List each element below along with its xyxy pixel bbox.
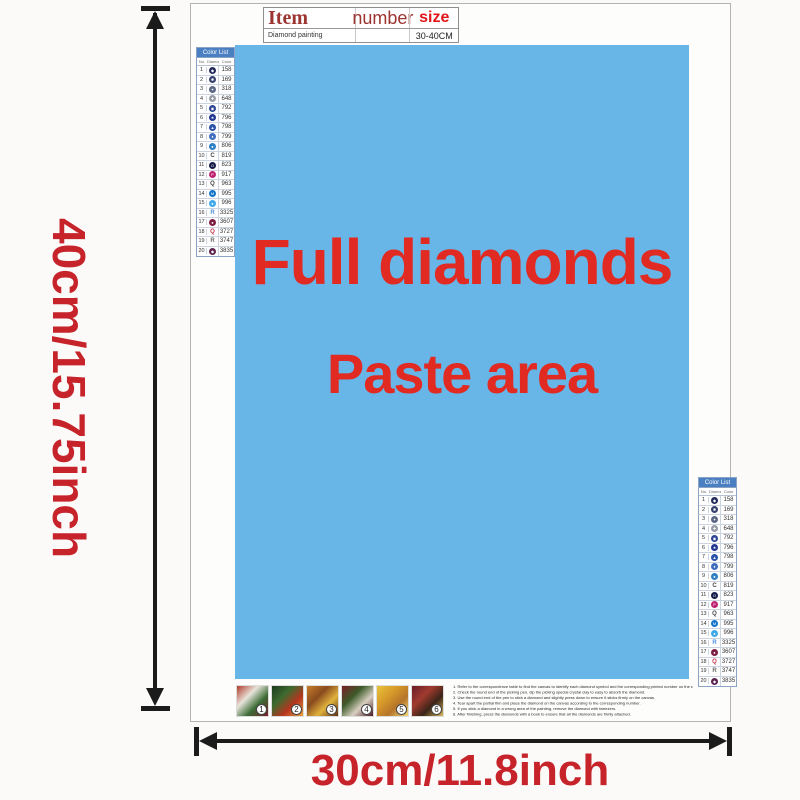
color-number: 8 xyxy=(699,564,709,570)
color-symbol: ★ xyxy=(207,114,219,123)
color-symbol: ✦ xyxy=(207,85,219,94)
color-number: 14 xyxy=(699,621,709,627)
color-code: 169 xyxy=(219,77,234,83)
color-code: 819 xyxy=(219,153,234,159)
step-thumbnail: 5 xyxy=(376,685,409,717)
diamond-dot-icon: M xyxy=(711,620,718,627)
color-list-row: 2✱169 xyxy=(699,506,736,516)
diamond-letter-icon: Q xyxy=(712,659,717,665)
step-number-badge: 5 xyxy=(396,704,407,715)
diamond-dot-icon: ◆ xyxy=(209,248,216,255)
diamond-dot-icon: ✱ xyxy=(711,506,718,513)
color-code: 823 xyxy=(219,162,234,168)
color-symbol: ◆ xyxy=(207,66,219,75)
color-number: 2 xyxy=(197,77,207,83)
color-number: 6 xyxy=(699,545,709,551)
color-symbol: C xyxy=(207,152,219,161)
color-list-row: 2✱169 xyxy=(197,76,234,86)
diamond-dot-icon: P xyxy=(711,601,718,608)
diamond-dot-icon: ★ xyxy=(209,114,216,121)
color-number: 10 xyxy=(699,583,709,589)
diamond-dot-icon: ▲ xyxy=(711,554,718,561)
color-column-header: Color xyxy=(721,488,736,495)
color-list-row: 6★796 xyxy=(699,544,736,554)
step-number-badge: 6 xyxy=(431,704,442,715)
color-list-row: 20◆3835 xyxy=(699,677,736,687)
color-number: 15 xyxy=(699,630,709,636)
color-symbol: ▲ xyxy=(709,553,721,562)
color-code: 798 xyxy=(721,554,736,560)
diamond-dot-icon: O xyxy=(711,592,718,599)
color-number: 10 xyxy=(197,153,207,159)
color-list-row: 1◆158 xyxy=(699,496,736,506)
color-code: 3747 xyxy=(721,668,736,674)
color-number: 13 xyxy=(197,181,207,187)
diamond-column-header: Diamond xyxy=(709,488,721,495)
color-list-row: 9●806 xyxy=(197,142,234,152)
color-number: 7 xyxy=(197,124,207,130)
item-table-header: Item number size xyxy=(264,8,458,29)
color-list-column-headers: No. Diamond Color xyxy=(197,58,234,66)
color-symbol: O xyxy=(207,161,219,170)
diamond-dot-icon: M xyxy=(209,190,216,197)
color-code: 963 xyxy=(721,611,736,617)
color-code: 3607 xyxy=(721,649,736,655)
height-dimension-label: 40cm/15.75inch xyxy=(42,218,96,558)
diamond-letter-icon: C xyxy=(210,153,214,159)
diamond-dot-icon: ● xyxy=(711,573,718,580)
no-column-header: No. xyxy=(197,58,207,65)
color-code: 158 xyxy=(721,497,736,503)
color-code: 318 xyxy=(219,86,234,92)
color-list-row: 7▲798 xyxy=(197,123,234,133)
color-list-row: 18Q3727 xyxy=(699,658,736,668)
color-number: 5 xyxy=(197,105,207,111)
color-list-row: 7▲798 xyxy=(699,553,736,563)
color-number: 17 xyxy=(699,649,709,655)
color-number: 18 xyxy=(699,659,709,665)
color-number: 12 xyxy=(197,172,207,178)
color-code: 648 xyxy=(219,96,234,102)
color-number: 4 xyxy=(699,526,709,532)
color-number: 15 xyxy=(197,200,207,206)
diamond-dot-icon: ★ xyxy=(711,544,718,551)
color-column-header: Color xyxy=(219,58,234,65)
color-list-row: 6★796 xyxy=(197,114,234,124)
color-code: 996 xyxy=(219,200,234,206)
width-dimension-label: 30cm/11.8inch xyxy=(230,746,690,796)
color-number: 9 xyxy=(699,573,709,579)
color-list-column-headers: No. Diamond Color xyxy=(699,488,736,496)
diamond-dot-icon: ▲ xyxy=(209,124,216,131)
color-code: 3325 xyxy=(721,640,736,646)
color-symbol: ● xyxy=(207,218,219,227)
color-symbol: R xyxy=(207,209,219,218)
diamond-letter-icon: R xyxy=(210,238,214,244)
diamond-dot-icon: P xyxy=(209,171,216,178)
color-number: 5 xyxy=(699,535,709,541)
color-code: 3747 xyxy=(219,238,234,244)
color-number: 3 xyxy=(699,516,709,522)
color-symbol: C xyxy=(709,582,721,591)
diamond-column-header: Diamond xyxy=(207,58,219,65)
step-thumbnail: 6 xyxy=(411,685,444,717)
color-list-row: 4✚648 xyxy=(699,525,736,535)
diamond-dot-icon: ● xyxy=(711,649,718,656)
diamond-letter-icon: Q xyxy=(210,229,215,235)
number-header-cell: number xyxy=(355,8,409,28)
arrow-head-right-icon xyxy=(709,732,727,750)
color-number: 20 xyxy=(699,678,709,684)
step-thumbnail: 2 xyxy=(271,685,304,717)
color-number: 20 xyxy=(197,248,207,254)
color-number: 12 xyxy=(699,602,709,608)
paste-area: Full diamonds Paste area xyxy=(235,45,689,679)
color-list-left: Color List No. Diamond Color 1◆1582✱1693… xyxy=(196,47,235,257)
color-code: 792 xyxy=(721,535,736,541)
color-list-row: 15●996 xyxy=(197,199,234,209)
step-thumbnail: 1 xyxy=(236,685,269,717)
diamond-dot-icon: ● xyxy=(209,143,216,150)
color-number: 19 xyxy=(197,238,207,244)
instruction-line: 6. After finishing, press the diamonds w… xyxy=(453,712,693,718)
diamond-dot-icon: ✚ xyxy=(711,525,718,532)
color-list-row: 11O823 xyxy=(197,161,234,171)
color-symbol: O xyxy=(709,591,721,600)
step-thumbnail: 4 xyxy=(341,685,374,717)
step-thumbnails: 123456 xyxy=(236,685,444,717)
color-code: 3727 xyxy=(219,229,234,235)
color-number: 13 xyxy=(699,611,709,617)
color-symbol: ◆ xyxy=(207,247,219,257)
paste-area-title: Full diamonds xyxy=(235,225,689,299)
color-list-row: 19R3747 xyxy=(197,237,234,247)
color-symbol: ✱ xyxy=(207,76,219,85)
diamond-dot-icon: ✦ xyxy=(209,86,216,93)
color-number: 19 xyxy=(699,668,709,674)
color-code: 796 xyxy=(219,115,234,121)
color-symbol: ◉ xyxy=(709,534,721,543)
color-list-row: 5◉792 xyxy=(699,534,736,544)
color-symbol: P xyxy=(207,171,219,180)
color-code: 995 xyxy=(721,621,736,627)
color-list-row: 1◆158 xyxy=(197,66,234,76)
color-code: 648 xyxy=(721,526,736,532)
color-list-right: Color List No. Diamond Color 1◆1582✱1693… xyxy=(698,477,737,687)
color-list-row: 4✚648 xyxy=(197,95,234,105)
color-number: 8 xyxy=(197,134,207,140)
color-list-row: 20◆3835 xyxy=(197,247,234,257)
diamond-dot-icon: ● xyxy=(209,200,216,207)
arrow-line-horizontal xyxy=(203,739,710,743)
diamond-dot-icon: ✱ xyxy=(209,76,216,83)
color-number: 16 xyxy=(197,210,207,216)
diamond-dot-icon: ♦ xyxy=(711,563,718,570)
color-number: 1 xyxy=(197,67,207,73)
color-list-title: Color List xyxy=(699,478,736,488)
color-code: 799 xyxy=(721,564,736,570)
step-number-badge: 2 xyxy=(291,704,302,715)
color-code: 806 xyxy=(721,573,736,579)
no-column-header: No. xyxy=(699,488,709,495)
arrow-cap-bottom xyxy=(141,706,170,711)
color-list-row: 14M995 xyxy=(699,620,736,630)
color-number: 7 xyxy=(699,554,709,560)
color-code: 819 xyxy=(721,583,736,589)
color-list-row: 16R3325 xyxy=(699,639,736,649)
diamond-dot-icon: ♦ xyxy=(209,133,216,140)
color-symbol: ● xyxy=(207,199,219,208)
color-list-row: 8♦799 xyxy=(197,133,234,143)
color-list-row: 12P917 xyxy=(197,171,234,181)
color-number: 9 xyxy=(197,143,207,149)
number-value-cell xyxy=(355,29,409,42)
color-list-row: 13Q963 xyxy=(699,610,736,620)
arrow-line-vertical xyxy=(153,13,157,690)
color-list-row: 17●3607 xyxy=(197,218,234,228)
color-symbol: R xyxy=(709,639,721,648)
color-symbol: ✦ xyxy=(709,515,721,524)
color-symbol: ✱ xyxy=(709,506,721,515)
color-code: 158 xyxy=(219,67,234,73)
arrow-cap-right xyxy=(727,727,732,756)
color-code: 963 xyxy=(219,181,234,187)
color-code: 169 xyxy=(721,507,736,513)
diamond-dot-icon: ● xyxy=(209,219,216,226)
color-list-row: 10C819 xyxy=(197,152,234,162)
color-list-row: 16R3325 xyxy=(197,209,234,219)
diamond-dot-icon: O xyxy=(209,162,216,169)
color-symbol: R xyxy=(207,237,219,246)
diamond-letter-icon: Q xyxy=(712,611,717,617)
color-symbol: P xyxy=(709,601,721,610)
color-list-row: 3✦318 xyxy=(197,85,234,95)
color-symbol: ♦ xyxy=(207,133,219,142)
step-number-badge: 1 xyxy=(256,704,267,715)
color-symbol: Q xyxy=(207,180,219,189)
diamond-dot-icon: ◆ xyxy=(711,678,718,685)
color-code: 917 xyxy=(721,602,736,608)
item-table: Item number size Diamond painting 30-40C… xyxy=(263,7,459,43)
size-header-cell: size xyxy=(409,8,458,28)
color-number: 2 xyxy=(699,507,709,513)
color-code: 318 xyxy=(721,516,736,522)
color-list-row: 3✦318 xyxy=(699,515,736,525)
color-symbol: ◆ xyxy=(709,677,721,687)
color-number: 1 xyxy=(699,497,709,503)
color-code: 3325 xyxy=(219,210,234,216)
diamond-dot-icon: ✦ xyxy=(711,516,718,523)
color-symbol: ◆ xyxy=(709,496,721,505)
color-list-row: 9●806 xyxy=(699,572,736,582)
color-list-row: 11O823 xyxy=(699,591,736,601)
paste-area-subtitle: Paste area xyxy=(235,341,689,406)
color-symbol: ✚ xyxy=(709,525,721,534)
color-code: 792 xyxy=(219,105,234,111)
color-code: 799 xyxy=(219,134,234,140)
step-number-badge: 3 xyxy=(326,704,337,715)
color-number: 11 xyxy=(197,162,207,168)
product-image: 40cm/15.75inch Item number size Diamond … xyxy=(0,0,800,800)
color-number: 4 xyxy=(197,96,207,102)
color-list-row: 14M995 xyxy=(197,190,234,200)
color-list-row: 13Q963 xyxy=(197,180,234,190)
color-list-rows: 1◆1582✱1693✦3184✚6485◉7926★7967▲7988♦799… xyxy=(699,496,736,686)
color-number: 17 xyxy=(197,219,207,225)
size-value-cell: 30-40CM xyxy=(409,29,458,42)
color-code: 996 xyxy=(721,630,736,636)
diamond-dot-icon: ◆ xyxy=(711,497,718,504)
color-number: 3 xyxy=(197,86,207,92)
color-code: 917 xyxy=(219,172,234,178)
diamond-letter-icon: R xyxy=(712,640,716,646)
color-code: 3727 xyxy=(721,659,736,665)
color-list-row: 19R3747 xyxy=(699,667,736,677)
color-symbol: ● xyxy=(709,572,721,581)
color-symbol: Q xyxy=(207,228,219,237)
diamond-dot-icon: ◆ xyxy=(209,67,216,74)
color-code: 3607 xyxy=(219,219,234,225)
diamond-letter-icon: R xyxy=(210,210,214,216)
diamond-letter-icon: R xyxy=(712,668,716,674)
color-symbol: ● xyxy=(207,142,219,151)
color-code: 823 xyxy=(721,592,736,598)
color-code: 3835 xyxy=(219,248,234,254)
color-symbol: Q xyxy=(709,658,721,667)
item-value-cell: Diamond painting xyxy=(264,32,355,39)
diamond-letter-icon: C xyxy=(712,583,716,589)
color-list-rows: 1◆1582✱1693✦3184✚6485◉7926★7967▲7988♦799… xyxy=(197,66,234,256)
color-list-row: 12P917 xyxy=(699,601,736,611)
instructions-text: 1. Refer to the correspondence table to … xyxy=(453,684,693,717)
color-symbol: ♦ xyxy=(709,563,721,572)
diamond-dot-icon: ◉ xyxy=(711,535,718,542)
color-symbol: ✚ xyxy=(207,95,219,104)
color-code: 806 xyxy=(219,143,234,149)
item-table-row: Diamond painting 30-40CM xyxy=(264,29,458,42)
color-symbol: M xyxy=(207,190,219,199)
step-thumbnail: 3 xyxy=(306,685,339,717)
color-symbol: Q xyxy=(709,610,721,619)
color-symbol: ◉ xyxy=(207,104,219,113)
diamond-dot-icon: ● xyxy=(711,630,718,637)
color-list-row: 18Q3727 xyxy=(197,228,234,238)
color-symbol: ● xyxy=(709,629,721,638)
product-sheet: Item number size Diamond painting 30-40C… xyxy=(190,3,731,722)
color-list-row: 10C819 xyxy=(699,582,736,592)
diamond-dot-icon: ✚ xyxy=(209,95,216,102)
color-number: 11 xyxy=(699,592,709,598)
color-number: 16 xyxy=(699,640,709,646)
color-code: 796 xyxy=(721,545,736,551)
color-symbol: ▲ xyxy=(207,123,219,132)
color-number: 18 xyxy=(197,229,207,235)
color-list-row: 8♦799 xyxy=(699,563,736,573)
color-symbol: ● xyxy=(709,648,721,657)
diamond-dot-icon: ◉ xyxy=(209,105,216,112)
color-symbol: ★ xyxy=(709,544,721,553)
color-symbol: M xyxy=(709,620,721,629)
color-symbol: R xyxy=(709,667,721,676)
color-code: 995 xyxy=(219,191,234,197)
item-header-cell: Item xyxy=(264,7,355,30)
color-number: 14 xyxy=(197,191,207,197)
arrow-head-down-icon xyxy=(146,688,164,706)
color-list-title: Color List xyxy=(197,48,234,58)
color-code: 798 xyxy=(219,124,234,130)
color-code: 3835 xyxy=(721,678,736,684)
diamond-letter-icon: Q xyxy=(210,181,215,187)
step-number-badge: 4 xyxy=(361,704,372,715)
color-list-row: 15●996 xyxy=(699,629,736,639)
color-list-row: 17●3607 xyxy=(699,648,736,658)
color-number: 6 xyxy=(197,115,207,121)
color-list-row: 5◉792 xyxy=(197,104,234,114)
